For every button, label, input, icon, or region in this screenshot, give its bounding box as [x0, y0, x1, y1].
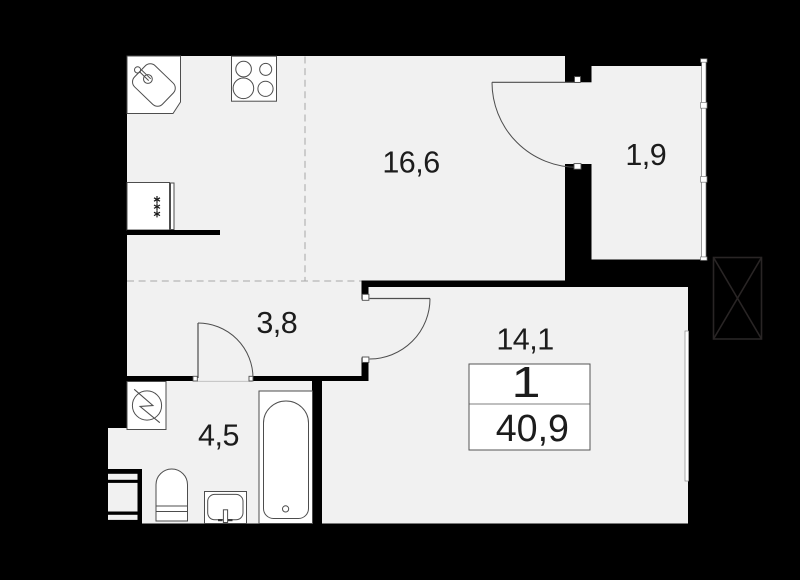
- svg-text:14,1: 14,1: [496, 323, 553, 357]
- svg-text:16,6: 16,6: [382, 146, 439, 180]
- svg-text:1,9: 1,9: [625, 138, 666, 172]
- svg-text:3,8: 3,8: [256, 306, 297, 340]
- svg-text:1: 1: [511, 359, 540, 407]
- svg-text:4,5: 4,5: [198, 419, 239, 453]
- svg-text:40,9: 40,9: [496, 408, 569, 450]
